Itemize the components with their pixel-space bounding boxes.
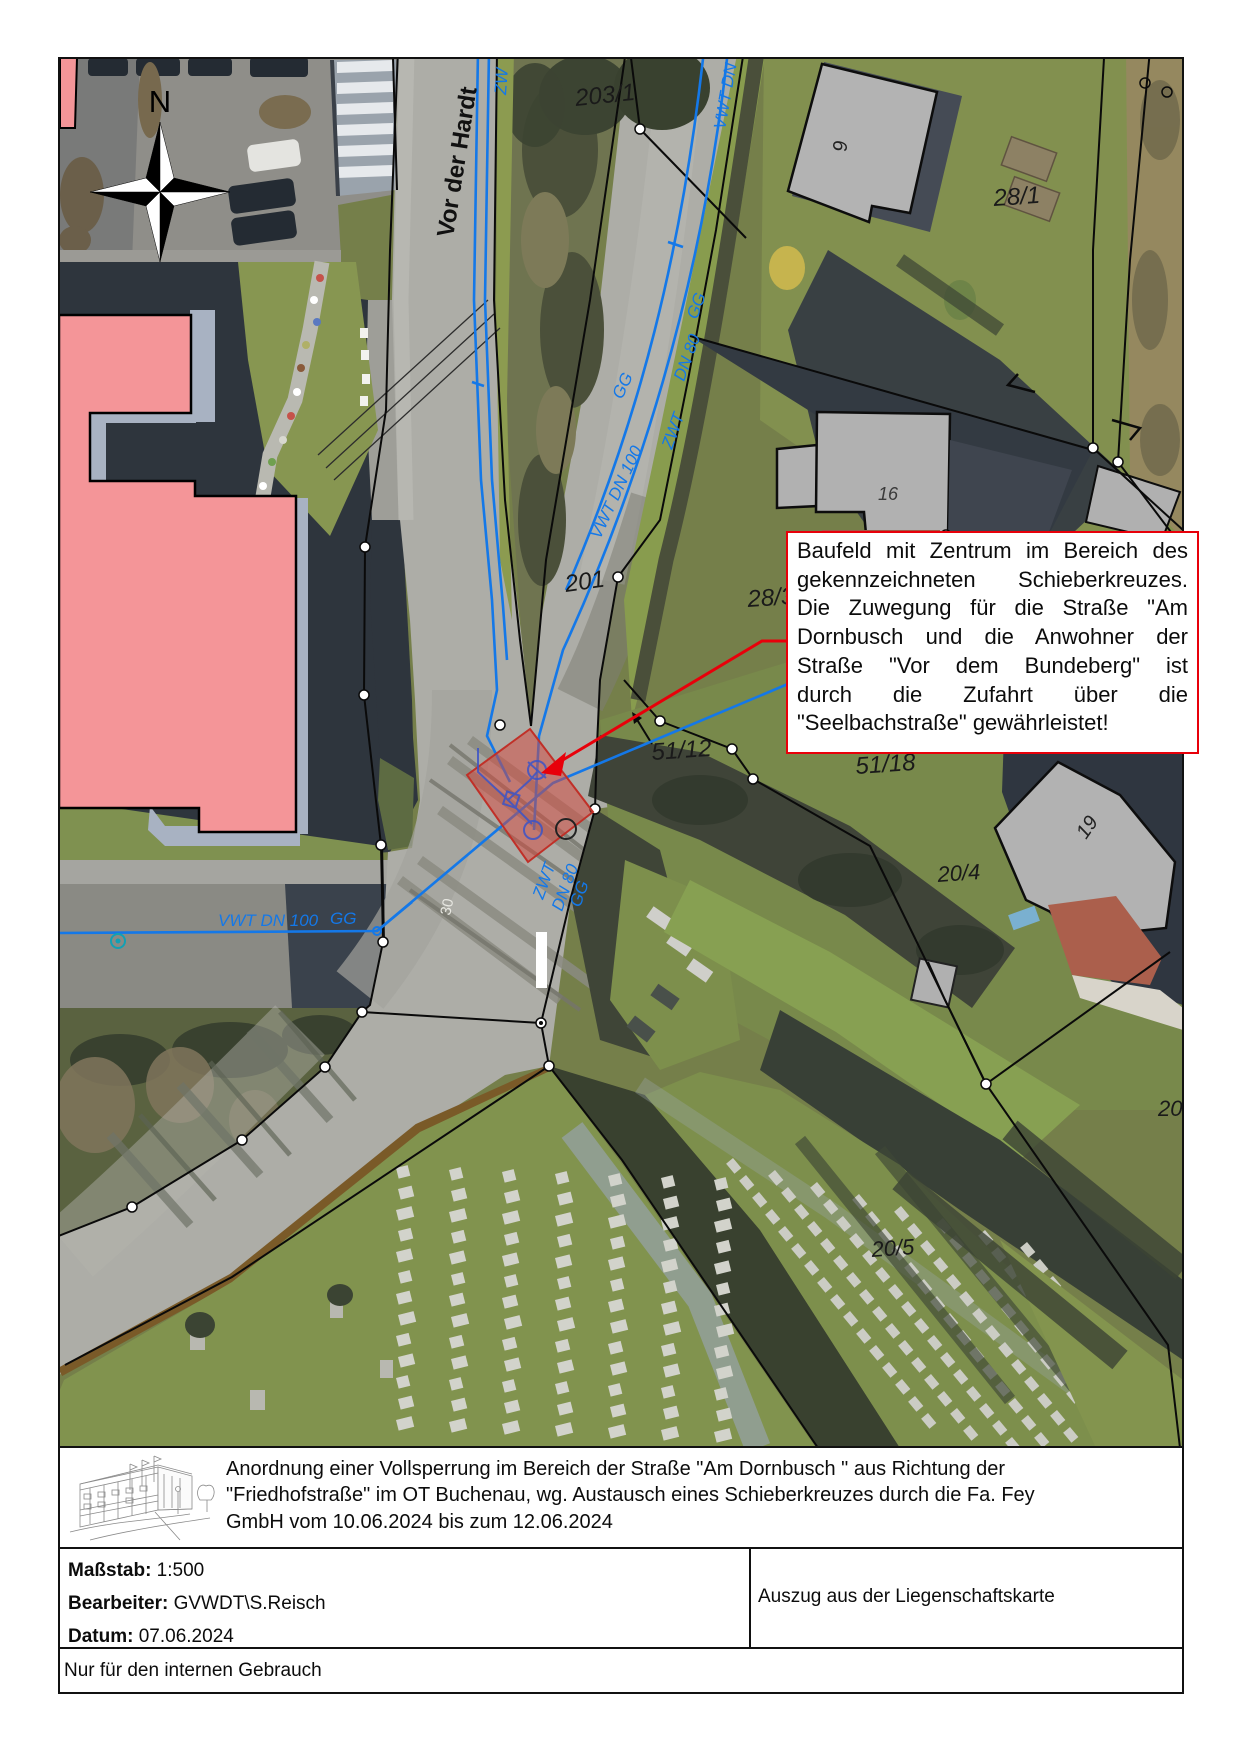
svg-text:20: 20 — [1157, 1096, 1183, 1121]
svg-text:16: 16 — [878, 484, 899, 504]
svg-text:20/5: 20/5 — [870, 1234, 916, 1262]
svg-text:GG: GG — [330, 909, 356, 928]
svg-text:51/12: 51/12 — [651, 735, 713, 766]
svg-text:30: 30 — [437, 897, 457, 917]
svg-text:6: 6 — [828, 140, 850, 152]
svg-text:20/4: 20/4 — [936, 859, 981, 887]
svg-text:VWT DN 100: VWT DN 100 — [218, 911, 319, 930]
svg-text:201: 201 — [562, 566, 606, 598]
svg-text:28/1: 28/1 — [992, 182, 1041, 212]
svg-text:N: N — [149, 84, 171, 119]
svg-text:ZW: ZW — [491, 66, 512, 97]
